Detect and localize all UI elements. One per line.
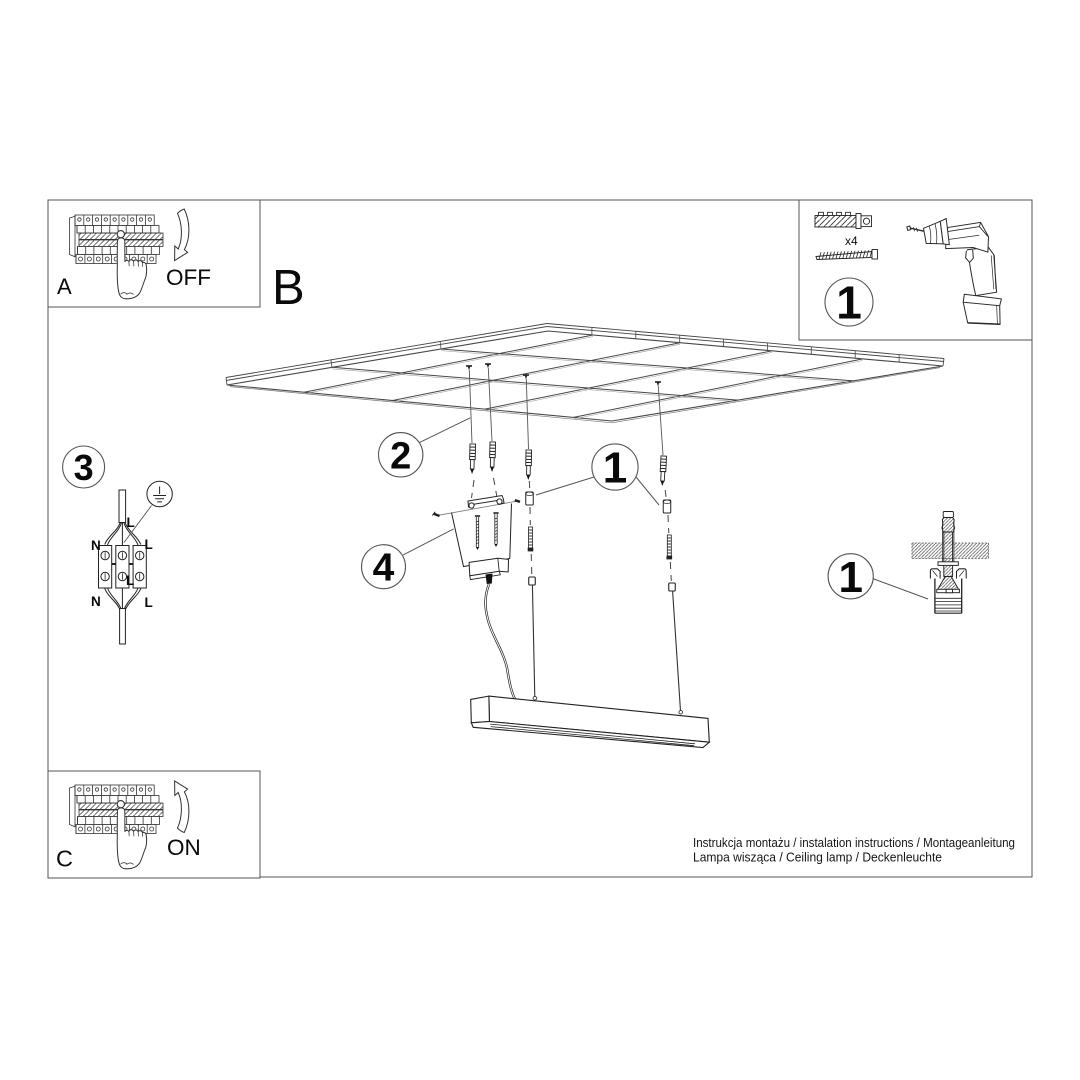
svg-text:C: C: [56, 846, 73, 872]
svg-text:2: 2: [390, 435, 411, 477]
svg-text:Instrukcja montażu / instalati: Instrukcja montażu / instalation instruc…: [693, 835, 1015, 850]
svg-text:L: L: [126, 573, 134, 588]
svg-text:N: N: [91, 538, 101, 553]
svg-text:ON: ON: [167, 835, 201, 860]
svg-text:N: N: [91, 594, 101, 609]
svg-text:A: A: [57, 274, 72, 299]
svg-text:3: 3: [74, 447, 94, 488]
svg-text:1: 1: [836, 276, 862, 328]
svg-text:L: L: [145, 537, 153, 552]
svg-text:L: L: [127, 515, 135, 530]
svg-text:L: L: [145, 595, 153, 610]
svg-text:4: 4: [373, 547, 395, 590]
svg-text:x4: x4: [845, 234, 858, 248]
svg-text:Lampa wisząca / Ceiling lamp /: Lampa wisząca / Ceiling lamp / Deckenleu…: [693, 850, 942, 865]
svg-text:B: B: [272, 261, 305, 315]
svg-text:OFF: OFF: [166, 265, 211, 290]
svg-text:1: 1: [603, 444, 627, 493]
svg-text:1: 1: [838, 553, 862, 602]
